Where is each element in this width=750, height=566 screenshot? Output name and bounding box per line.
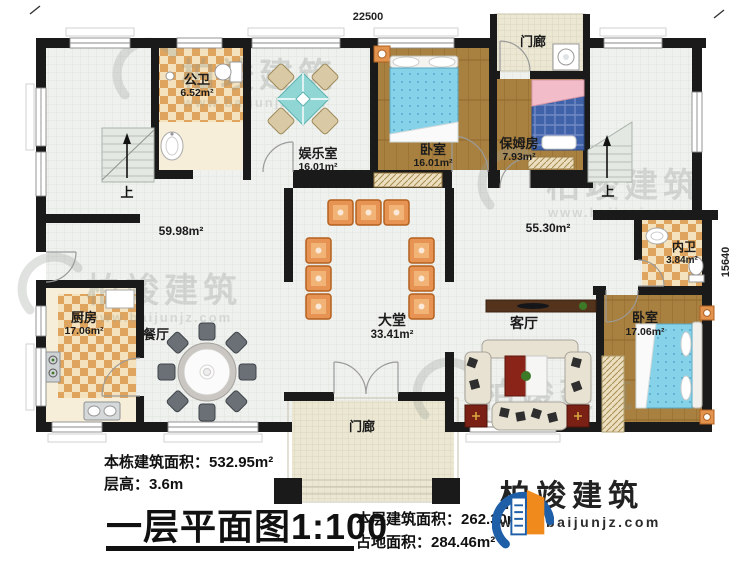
room-label: 门廊 (520, 34, 546, 49)
porch-pillar (432, 478, 460, 504)
stairs-up-label: 上 (120, 185, 133, 200)
dimension-top: 22500 (353, 11, 384, 23)
dining-chair (239, 364, 256, 380)
armchair (409, 238, 434, 263)
floor-area-label: 本层建筑面积： (356, 511, 461, 528)
title-underline (106, 546, 354, 551)
room-label: 卧室 (632, 310, 658, 325)
porch-bottom-floor (292, 401, 454, 501)
mahjong-table (267, 63, 339, 135)
armchair (409, 294, 434, 319)
room-area: 17.06m² (64, 325, 104, 337)
window (692, 92, 702, 152)
window (36, 306, 46, 336)
building-total-value: 532.95m² (209, 454, 273, 471)
stove (46, 352, 60, 382)
window (36, 88, 46, 146)
dining-chair (158, 364, 175, 380)
footprint-label: 占地面积： (356, 534, 431, 551)
sofa-set (465, 340, 591, 430)
floorplan-canvas: 柏竣建筑 www.baijunjz.com 柏竣建筑 www.baijunjz.… (0, 0, 750, 566)
room-area: 16.01m² (413, 157, 453, 169)
room-area: 6.52m² (180, 87, 214, 99)
sink-icon (161, 132, 183, 160)
side-table (465, 405, 487, 427)
plan-title-text: 一层平面图 (106, 506, 291, 547)
room-area: 16.01m² (298, 161, 338, 173)
fridge (106, 290, 134, 308)
plant-icon (521, 371, 531, 381)
floor-drain (166, 72, 174, 80)
room-label: 内卫 (672, 239, 696, 254)
window (52, 422, 102, 432)
room-area: 33.41m² (371, 329, 414, 341)
armchair (384, 200, 409, 225)
armchair (356, 200, 381, 225)
armchair (306, 238, 331, 263)
tv-console (486, 300, 596, 312)
room-label: 门廊 (349, 419, 375, 434)
sink-icon (646, 228, 668, 244)
armchair (306, 294, 331, 319)
window (36, 348, 46, 406)
stairs-up-label: 上 (601, 184, 614, 199)
room-label: 餐厅 (142, 327, 169, 342)
window (177, 38, 222, 48)
window (252, 38, 340, 48)
room-label: 保姆房 (498, 136, 538, 151)
side-table (567, 405, 589, 427)
armchair (328, 200, 353, 225)
dimension-right: 15640 (720, 247, 732, 278)
building-total-label: 本栋建筑面积： (104, 454, 209, 471)
company-logo: 柏竣建筑 www.baijunjz.com (492, 480, 661, 530)
armchair (409, 266, 434, 291)
dining-chair (199, 323, 215, 340)
room-label: 娱乐室 (298, 146, 337, 161)
footprint-value: 284.46m² (431, 534, 495, 551)
floor-height-note: 层高：3.6m (104, 474, 273, 496)
washing-machine (553, 44, 579, 70)
open-area-label: 59.98m² (159, 224, 204, 238)
window (70, 38, 130, 48)
dining-chair (199, 404, 215, 421)
window (604, 38, 662, 48)
plan-title: 一层平面图1:100 (106, 498, 388, 550)
window (168, 422, 258, 432)
room-area: 3.84m² (666, 255, 698, 266)
floor-height-label: 层高： (104, 476, 149, 493)
room-label: 厨房 (71, 310, 97, 325)
rug (505, 356, 547, 396)
room-area: 17.06m² (625, 326, 665, 338)
notes-left: 本栋建筑面积：532.95m² 层高：3.6m (104, 452, 273, 496)
room-label: 大堂 (378, 312, 406, 328)
wardrobe (602, 356, 624, 432)
floor-height-value: 3.6m (149, 476, 183, 493)
open-area-label: 55.30m² (526, 221, 571, 235)
armchair (306, 266, 331, 291)
room-label: 客厅 (509, 315, 538, 331)
console-cabinet (374, 173, 442, 187)
logo-icon (492, 480, 554, 550)
room-area: 7.93m² (502, 151, 536, 163)
kitchen-sink (84, 402, 120, 420)
window (36, 152, 46, 196)
room-label: 公卫 (184, 72, 210, 87)
stairs-left (102, 128, 154, 182)
dining-table (158, 323, 256, 421)
bed (532, 80, 584, 150)
building-total-note: 本栋建筑面积：532.95m² (104, 452, 273, 474)
room-label: 卧室 (420, 142, 446, 157)
